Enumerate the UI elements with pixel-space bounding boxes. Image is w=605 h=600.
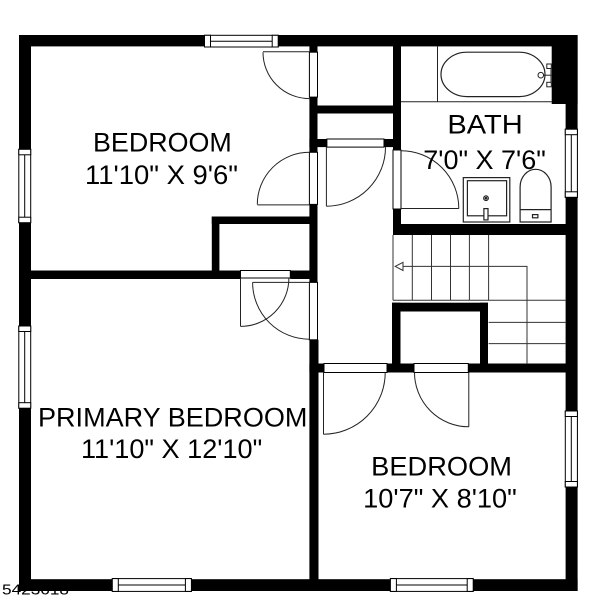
svg-text:11'10" X 12'10": 11'10" X 12'10" [81, 434, 262, 464]
svg-text:7'0" X 7'6": 7'0" X 7'6" [423, 145, 546, 175]
svg-text:PRIMARY BEDROOM: PRIMARY BEDROOM [38, 402, 307, 432]
svg-text:11'10" X 9'6": 11'10" X 9'6" [85, 160, 238, 190]
svg-text:10'7" X 8'10": 10'7" X 8'10" [363, 484, 517, 514]
svg-text:BATH: BATH [447, 109, 522, 139]
svg-text:5423618: 5423618 [2, 582, 69, 599]
svg-text:BEDROOM: BEDROOM [93, 128, 232, 158]
svg-text:BEDROOM: BEDROOM [371, 452, 512, 482]
